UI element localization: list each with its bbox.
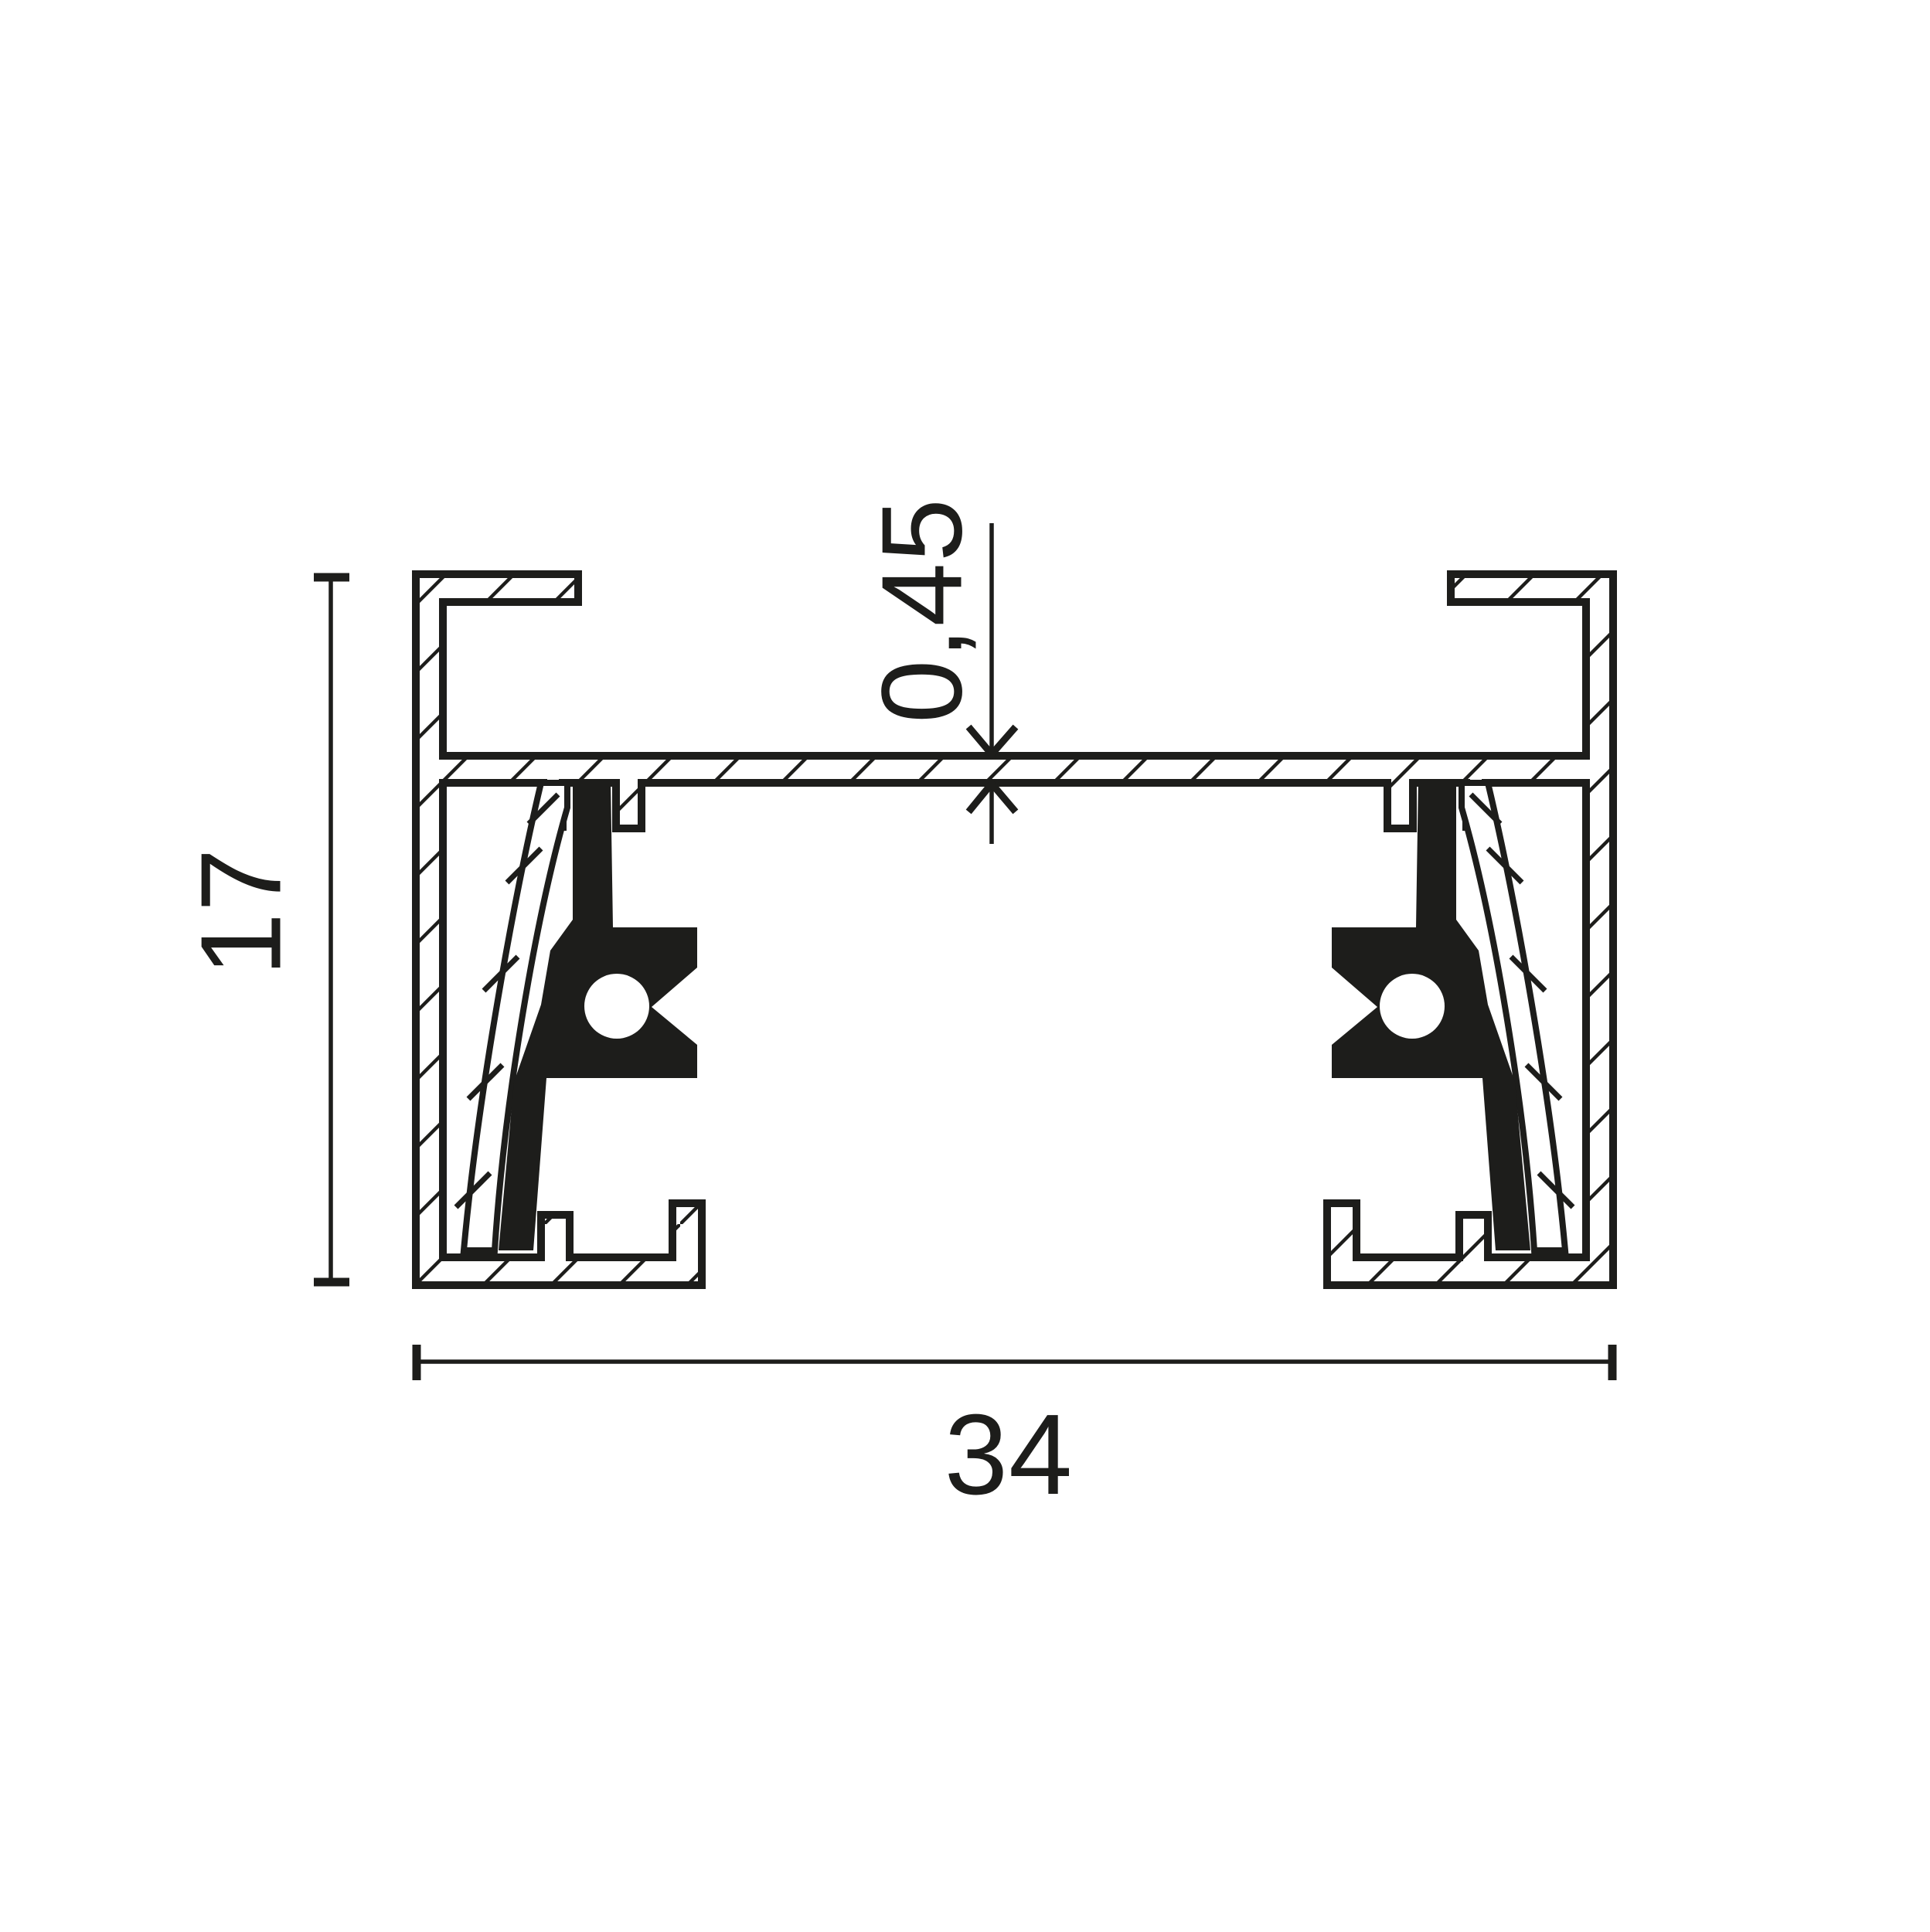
- conductor-assembly-left: [456, 781, 697, 1250]
- conductor-assembly-right: [1332, 781, 1573, 1250]
- technical-drawing: 17 34 0,45: [0, 0, 1930, 1932]
- dimension-height: 17: [178, 577, 350, 1283]
- drawing-canvas: 17 34 0,45: [0, 0, 1930, 1932]
- dimension-thickness-label: 0,45: [859, 498, 986, 723]
- dimension-thickness: 0,45: [859, 498, 1014, 844]
- dimension-width: 34: [417, 1345, 1612, 1519]
- dimension-width-label: 34: [945, 1391, 1074, 1519]
- dimension-height-label: 17: [178, 848, 305, 977]
